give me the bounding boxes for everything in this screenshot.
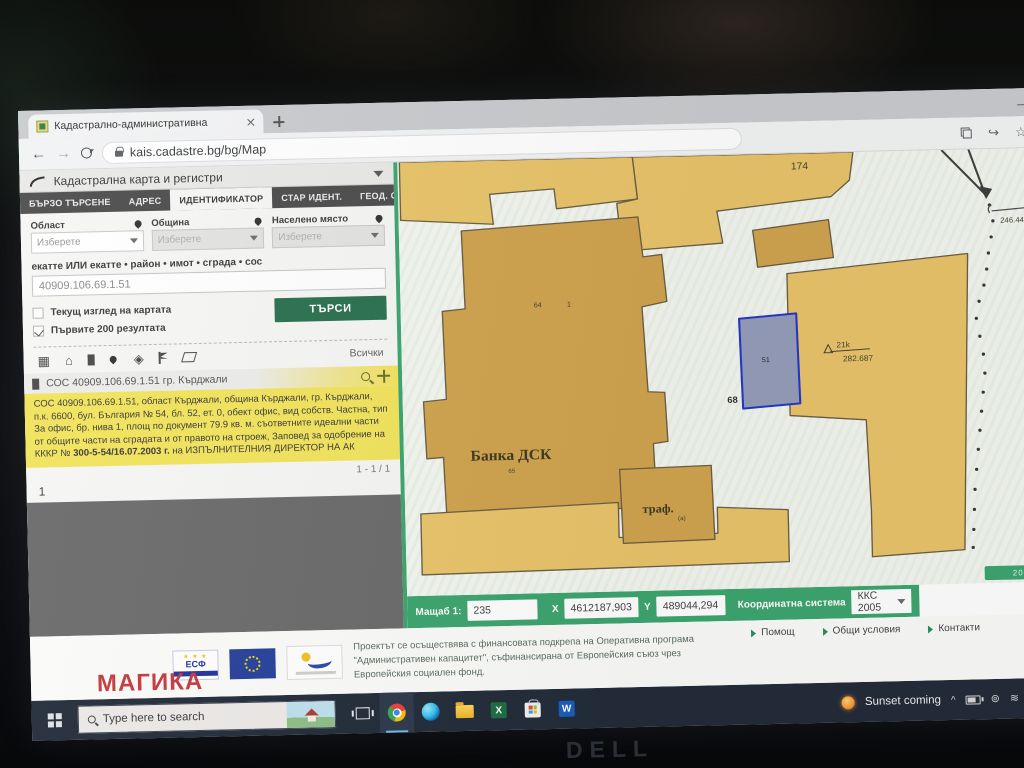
- footer-links: Помощ Общи условия Контакти: [751, 622, 980, 638]
- new-tab-button[interactable]: [273, 116, 284, 127]
- parcel-polygon: [787, 253, 975, 558]
- tab-title: Кадастрално-административна: [54, 116, 240, 132]
- first-200-checkbox[interactable]: [33, 325, 44, 336]
- chevron-right-icon: [823, 627, 828, 635]
- map-scale-bar: 20 m: [985, 564, 1024, 580]
- tray-chevron-icon[interactable]: ^: [951, 694, 956, 705]
- current-view-label: Текущ изглед на картата: [50, 304, 171, 318]
- annotation-arrow: [941, 149, 985, 195]
- map-label: 64: [534, 301, 542, 309]
- scale-label: Мащаб 1:: [415, 606, 461, 618]
- back-icon[interactable]: ←: [31, 146, 46, 161]
- building-polygon: [752, 220, 833, 268]
- opac-logo: [286, 645, 343, 680]
- site-logo-swoosh: [29, 175, 45, 187]
- share-icon[interactable]: ↪: [988, 126, 999, 139]
- search-sidebar: Кадастрална карта и регистри БЪРЗО ТЪРСЕ…: [19, 162, 403, 636]
- trafo-label: траф.: [642, 501, 674, 515]
- help-link[interactable]: Помощ: [751, 627, 795, 639]
- weather-label[interactable]: Sunset coming: [865, 694, 941, 708]
- map-label: 68: [727, 395, 738, 405]
- filter-all-button[interactable]: Всички: [349, 347, 383, 360]
- laptop-brand-logo: DELL: [566, 735, 655, 764]
- terms-link[interactable]: Общи условия: [822, 624, 900, 637]
- first-200-label: Първите 200 резултата: [51, 322, 166, 336]
- map-pin-icon[interactable]: [253, 216, 263, 226]
- tab-quick-search[interactable]: БЪРЗО ТЪРСЕНЕ: [20, 191, 120, 214]
- chevron-down-icon: [250, 236, 258, 241]
- chevron-down-icon: [130, 238, 138, 243]
- chrome-taskbar-button[interactable]: [379, 692, 414, 733]
- chevron-down-icon: [897, 598, 905, 603]
- polygon-filter-icon[interactable]: [181, 352, 197, 362]
- word-icon: W: [559, 701, 575, 717]
- obshtina-select[interactable]: Изберете: [151, 227, 264, 251]
- sidebar-filler: [27, 494, 404, 637]
- site-title: Кадастрална карта и регистри: [53, 167, 365, 188]
- chevron-right-icon: [751, 629, 756, 637]
- onedrive-icon[interactable]: ⊚: [991, 693, 1000, 704]
- result-description: СОС 40909.106.69.1.51, област Кърджали, …: [24, 385, 400, 467]
- translate-icon[interactable]: [961, 127, 972, 138]
- bookmark-star-icon[interactable]: ☆: [1015, 125, 1024, 138]
- contacts-link[interactable]: Контакти: [928, 622, 980, 634]
- map-pin-icon[interactable]: [133, 219, 143, 229]
- building-icon: [32, 378, 39, 389]
- search-button[interactable]: ТЪРСИ: [274, 296, 387, 323]
- tab-old-ident[interactable]: СТАР ИДЕНТ.: [272, 185, 351, 208]
- measurement-line: [992, 206, 1024, 211]
- folder-icon: [456, 704, 474, 717]
- scale-input[interactable]: 235: [467, 599, 538, 621]
- identifier-input[interactable]: 40909.106.69.1.51: [32, 268, 386, 297]
- site-favicon: [36, 120, 48, 132]
- chevron-right-icon: [928, 625, 933, 633]
- store-taskbar-button[interactable]: [515, 689, 550, 730]
- map-canvas: 174 64 1 Банка ДСК 65 траф. (а) 68 51 21…: [397, 147, 1024, 596]
- map-label: 65: [508, 468, 516, 475]
- zoom-to-result-icon[interactable]: [361, 372, 370, 381]
- pin-filter-icon[interactable]: [108, 354, 118, 364]
- oblast-select[interactable]: Изберете: [31, 230, 144, 254]
- file-explorer-taskbar-button[interactable]: [447, 691, 482, 732]
- map-label: 21k: [836, 340, 851, 349]
- system-tray: Sunset coming ^ ⊚ ≋ ENGUS: [842, 687, 1024, 713]
- taskbar-search-input[interactable]: Type here to search: [78, 700, 337, 734]
- approval-order-number: 300-5-54/16.07.2003 г.: [73, 446, 170, 459]
- eu-funding-text: Проектът се осъществява с финансовата по…: [353, 632, 695, 682]
- chevron-down-icon: [371, 233, 379, 238]
- map-label: 246.448: [1000, 215, 1024, 224]
- identifier-form: Област Изберете Община Изберете: [20, 205, 397, 347]
- task-view-icon: [356, 707, 370, 719]
- task-view-button[interactable]: [345, 693, 380, 734]
- add-result-icon[interactable]: [377, 369, 390, 382]
- start-button[interactable]: [31, 700, 78, 741]
- weather-sun-icon[interactable]: [842, 696, 855, 709]
- settlement-select[interactable]: Изберете: [272, 225, 385, 249]
- wifi-icon[interactable]: ≋: [1010, 693, 1019, 704]
- search-highlight-image: [286, 700, 335, 729]
- map-label: 1: [567, 301, 571, 309]
- search-icon: [88, 715, 96, 723]
- tab-address[interactable]: АДРЕС: [119, 190, 170, 212]
- oblast-label: Област: [30, 220, 65, 232]
- laptop-screen: Кадастрално-административна ← → kais.cad…: [18, 87, 1024, 741]
- cadastral-map[interactable]: 174 64 1 Банка ДСК 65 траф. (а) 68 51 21…: [397, 147, 1024, 596]
- coordinate-system-select[interactable]: ККС 2005: [851, 589, 911, 614]
- x-coordinate-input[interactable]: 4612187,903: [564, 597, 638, 619]
- obshtina-label: Община: [151, 217, 189, 229]
- settlement-label: Населено място: [272, 214, 349, 227]
- kais-site: Кадастрална карта и регистри БЪРЗО ТЪРСЕ…: [19, 147, 1024, 701]
- eu-flag-logo: [229, 648, 276, 679]
- flag-filter-icon[interactable]: [159, 352, 168, 364]
- map-column: 174 64 1 Банка ДСК 65 траф. (а) 68 51 21…: [393, 147, 1024, 628]
- parcel-polygon: [399, 157, 638, 226]
- battery-icon[interactable]: [966, 695, 981, 704]
- store-icon: [525, 702, 541, 717]
- lock-icon: [115, 151, 123, 157]
- house-filter-icon[interactable]: ⌂: [65, 353, 73, 366]
- grid-filter-icon[interactable]: ▦: [38, 354, 51, 367]
- minimize-icon[interactable]: [1017, 104, 1024, 106]
- edge-taskbar-button[interactable]: [413, 691, 448, 732]
- y-coordinate-input[interactable]: 489044,294: [657, 595, 726, 617]
- windows-logo-icon: [48, 713, 62, 727]
- building-filter-icon[interactable]: [88, 354, 95, 365]
- map-label: 282.687: [843, 354, 874, 364]
- forward-icon[interactable]: →: [56, 146, 71, 161]
- chrome-icon: [388, 703, 406, 721]
- layers-filter-icon[interactable]: ◈: [134, 352, 144, 365]
- x-label: X: [552, 603, 559, 614]
- photo-watermark: МАГИКА: [97, 668, 204, 698]
- map-label: (а): [678, 515, 686, 522]
- reload-icon[interactable]: [81, 147, 92, 158]
- coordinate-system-label: Координатна система: [738, 597, 846, 610]
- current-view-checkbox[interactable]: [32, 307, 43, 318]
- y-label: Y: [644, 601, 651, 612]
- tab-close-icon[interactable]: [246, 117, 255, 126]
- word-taskbar-button[interactable]: W: [549, 688, 584, 729]
- url-text: kais.cadastre.bg/bg/Map: [130, 142, 266, 159]
- map-label: 51: [762, 356, 770, 364]
- tab-identifier[interactable]: ИДЕНТИФИКАТОР: [170, 187, 272, 210]
- excel-icon: X: [491, 702, 507, 718]
- dotted-boundary-line: [964, 203, 1002, 549]
- excel-taskbar-button[interactable]: X: [481, 690, 516, 731]
- map-label: 174: [791, 161, 809, 172]
- map-pin-icon[interactable]: [374, 213, 384, 223]
- collapse-chevron-icon[interactable]: [373, 170, 383, 176]
- edge-icon: [422, 703, 440, 721]
- window-controls: [1017, 100, 1024, 116]
- bank-label: Банка ДСК: [470, 446, 551, 464]
